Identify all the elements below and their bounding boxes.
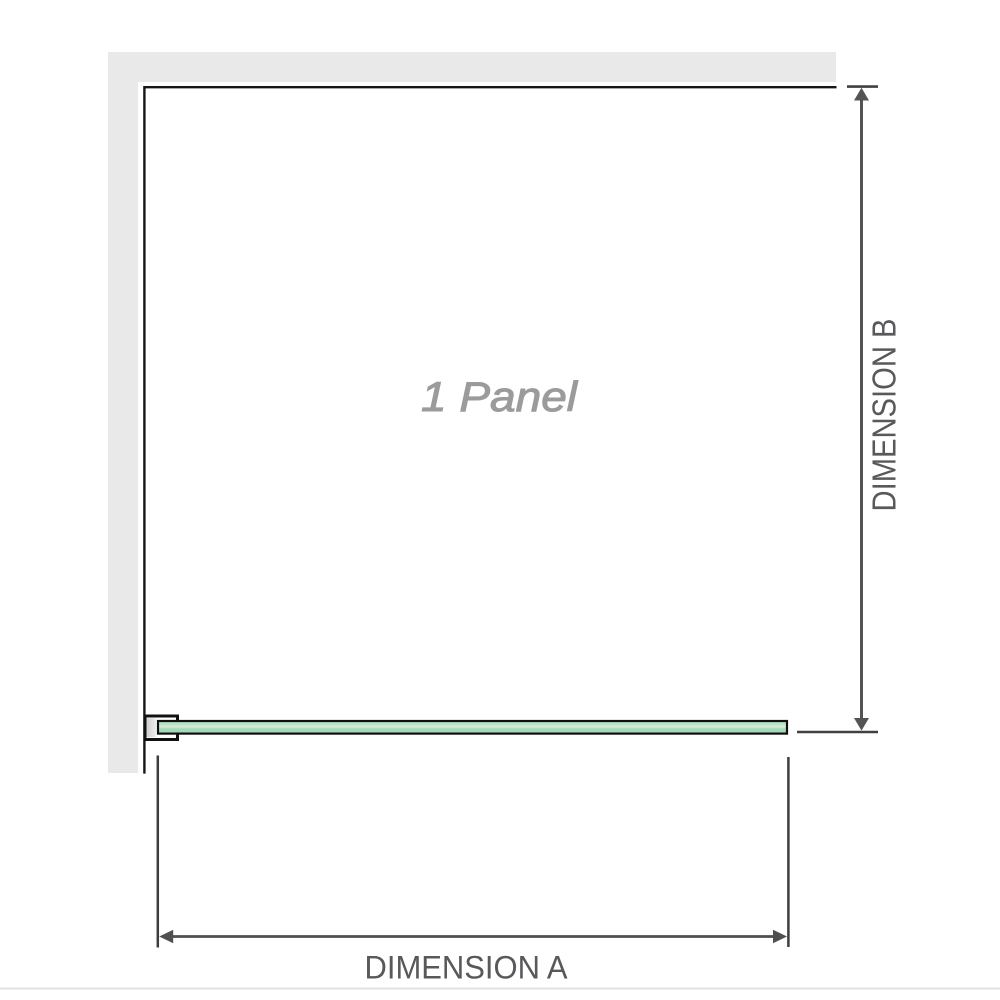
svg-text:1 Panel: 1 Panel: [421, 373, 579, 420]
svg-text:DIMENSION A: DIMENSION A: [365, 950, 569, 986]
svg-text:DIMENSION B: DIMENSION B: [866, 319, 903, 512]
